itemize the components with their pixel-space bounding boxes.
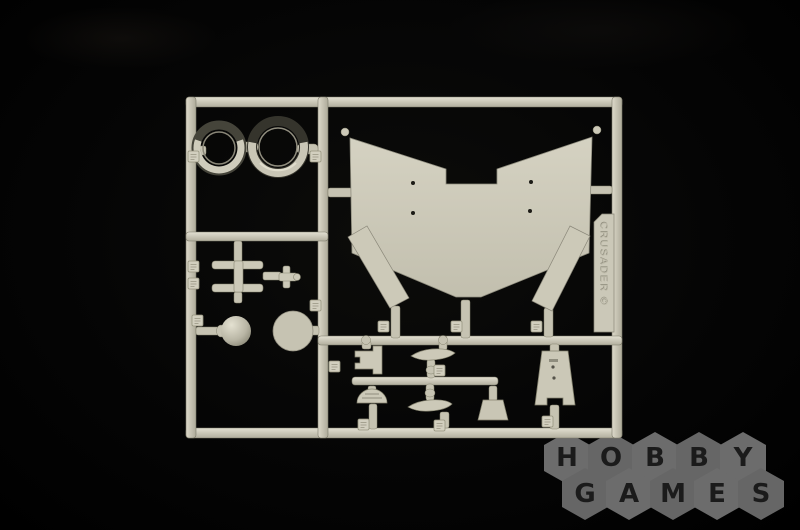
part-number-tag [358, 419, 369, 430]
part-number-tag [310, 151, 321, 162]
part-number-tag [188, 151, 199, 162]
rail-sub-horizontal [352, 377, 498, 385]
bucket-part [478, 400, 508, 420]
rail-left-horizontal [186, 232, 328, 241]
ring-small [196, 125, 242, 171]
part-number-tag [310, 300, 321, 311]
part-number-tag [378, 321, 389, 332]
part-number-tag [531, 321, 542, 332]
part-number-tag [434, 365, 445, 376]
part-number-tag [188, 261, 199, 272]
panel-pin-left [341, 128, 349, 136]
crusader-label-text: CRUSADER © [598, 222, 610, 307]
rail-bottom [186, 428, 622, 438]
ball-part [221, 316, 251, 346]
disc-part [273, 311, 313, 351]
shield-panel [535, 351, 575, 405]
rail-center-vertical [318, 97, 328, 438]
part-number-tag [434, 420, 445, 431]
panel-pin-right [593, 126, 601, 134]
blade-lower [408, 400, 452, 411]
rail-top [186, 97, 622, 107]
crusader-label-tag: CRUSADER © CRUSADER © [594, 214, 614, 332]
part-number-tag [329, 361, 340, 372]
part-number-tag [542, 416, 553, 427]
part-number-tag [192, 315, 203, 326]
bracket-part [355, 346, 382, 374]
half-dome [357, 389, 387, 403]
beam-part [212, 261, 301, 292]
blade-upper [411, 349, 455, 360]
photo-background: H O B B Y G A M E S [0, 0, 800, 530]
sprue-frame: CRUSADER © CRUSADER © [0, 0, 800, 530]
part-number-tag [188, 278, 199, 289]
part-number-tag [451, 321, 462, 332]
ring-large [252, 121, 304, 173]
